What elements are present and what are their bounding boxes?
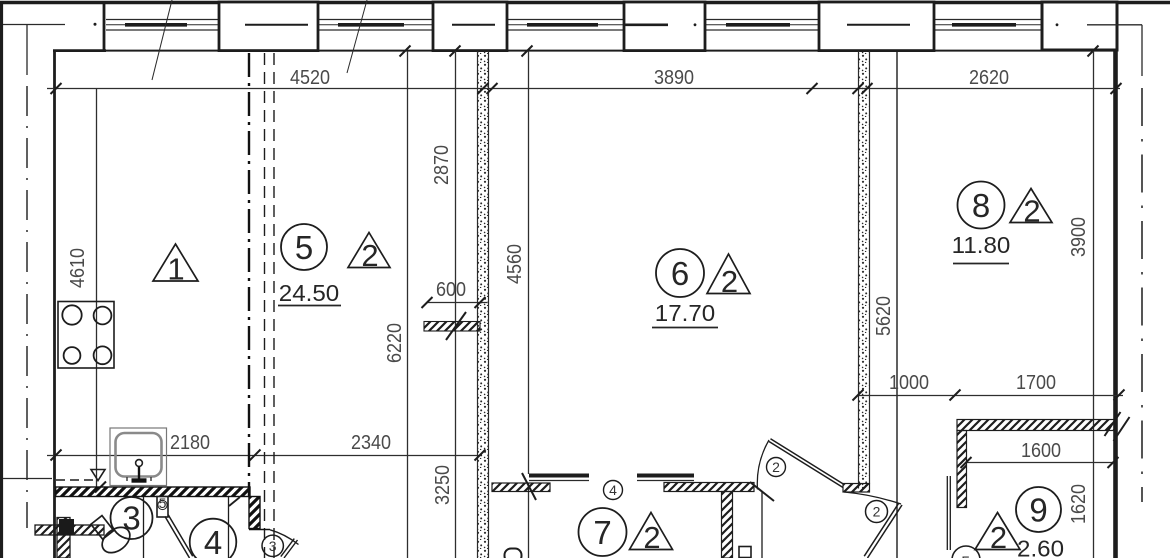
svg-text:1000: 1000 [889,372,929,394]
svg-text:6: 6 [671,255,689,292]
svg-text:24.50: 24.50 [279,281,339,306]
svg-text:8: 8 [972,187,990,224]
svg-text:Б: Б [961,553,970,558]
svg-text:2620: 2620 [969,67,1009,89]
svg-text:5: 5 [295,229,313,266]
svg-text:2: 2 [1023,194,1040,229]
svg-text:4560: 4560 [504,244,526,284]
svg-text:4: 4 [204,524,222,558]
svg-text:2: 2 [873,504,881,520]
svg-text:3900: 3900 [1068,217,1090,257]
svg-text:2: 2 [772,459,780,475]
svg-text:3: 3 [122,500,140,537]
svg-text:2: 2 [361,238,378,273]
svg-text:2870: 2870 [431,145,453,185]
svg-text:3250: 3250 [432,465,454,505]
svg-text:6220: 6220 [384,323,406,363]
svg-text:9: 9 [1029,492,1047,529]
svg-text:600: 600 [436,279,466,301]
svg-text:5620: 5620 [873,296,895,336]
svg-text:1620: 1620 [1068,484,1090,524]
svg-text:1700: 1700 [1016,372,1056,394]
svg-text:2.60: 2.60 [1017,536,1064,558]
svg-text:4: 4 [609,482,617,498]
svg-text:4520: 4520 [290,67,330,89]
svg-text:2180: 2180 [170,432,210,454]
svg-text:5: 5 [159,495,167,511]
svg-text:2: 2 [721,264,738,299]
svg-text:1: 1 [167,252,184,287]
svg-text:2: 2 [990,520,1007,555]
svg-text:11.80: 11.80 [952,233,1011,258]
svg-text:7: 7 [593,514,611,551]
svg-text:3: 3 [269,538,277,554]
svg-text:4610: 4610 [67,248,89,288]
svg-text:17.70: 17.70 [655,301,715,326]
svg-text:3890: 3890 [654,67,694,89]
svg-text:2340: 2340 [351,432,391,454]
svg-text:2: 2 [643,520,660,555]
svg-text:1600: 1600 [1021,440,1061,462]
